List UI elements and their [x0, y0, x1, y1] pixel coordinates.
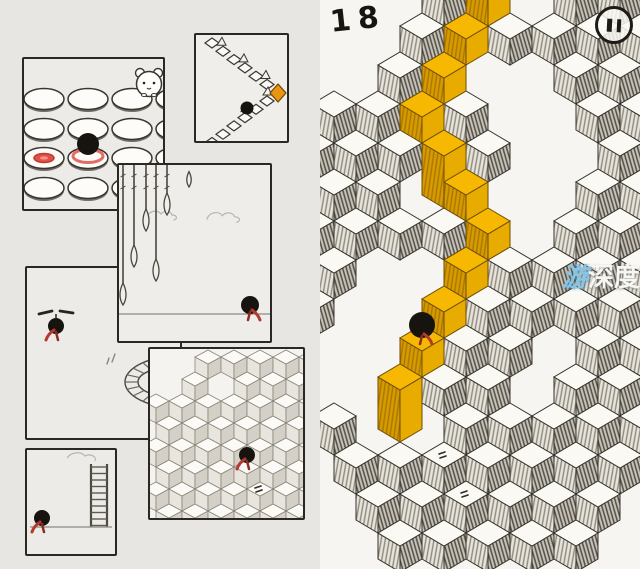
panel-ladder: [25, 448, 117, 556]
helicopter-ball: [46, 318, 64, 340]
disc-panel-ball: [77, 133, 99, 155]
spears-ball: [241, 296, 260, 320]
level-collage: [0, 0, 320, 569]
game-screenshot: 18 游深度: [0, 0, 640, 569]
zigzag-ball: [241, 102, 254, 115]
panel-falling-spears: [117, 163, 272, 343]
level-number: 18: [328, 0, 387, 40]
panel-zigzag-path: [194, 33, 289, 143]
zigzag-scene: [196, 35, 287, 141]
watermark-white: 深度: [588, 263, 640, 293]
hamster-face: [136, 69, 163, 97]
ladder-scene: [27, 450, 115, 554]
watermark: 游深度: [562, 263, 640, 294]
spears-scene: [119, 165, 270, 341]
watermark-blue: 游: [562, 263, 588, 293]
ladder-ball: [32, 510, 50, 532]
panel-cube-field-small: [148, 347, 305, 520]
game-board-pane[interactable]: 18 游深度: [320, 0, 640, 569]
pause-icon: [604, 18, 624, 32]
mini-cube-scene: [150, 349, 303, 518]
